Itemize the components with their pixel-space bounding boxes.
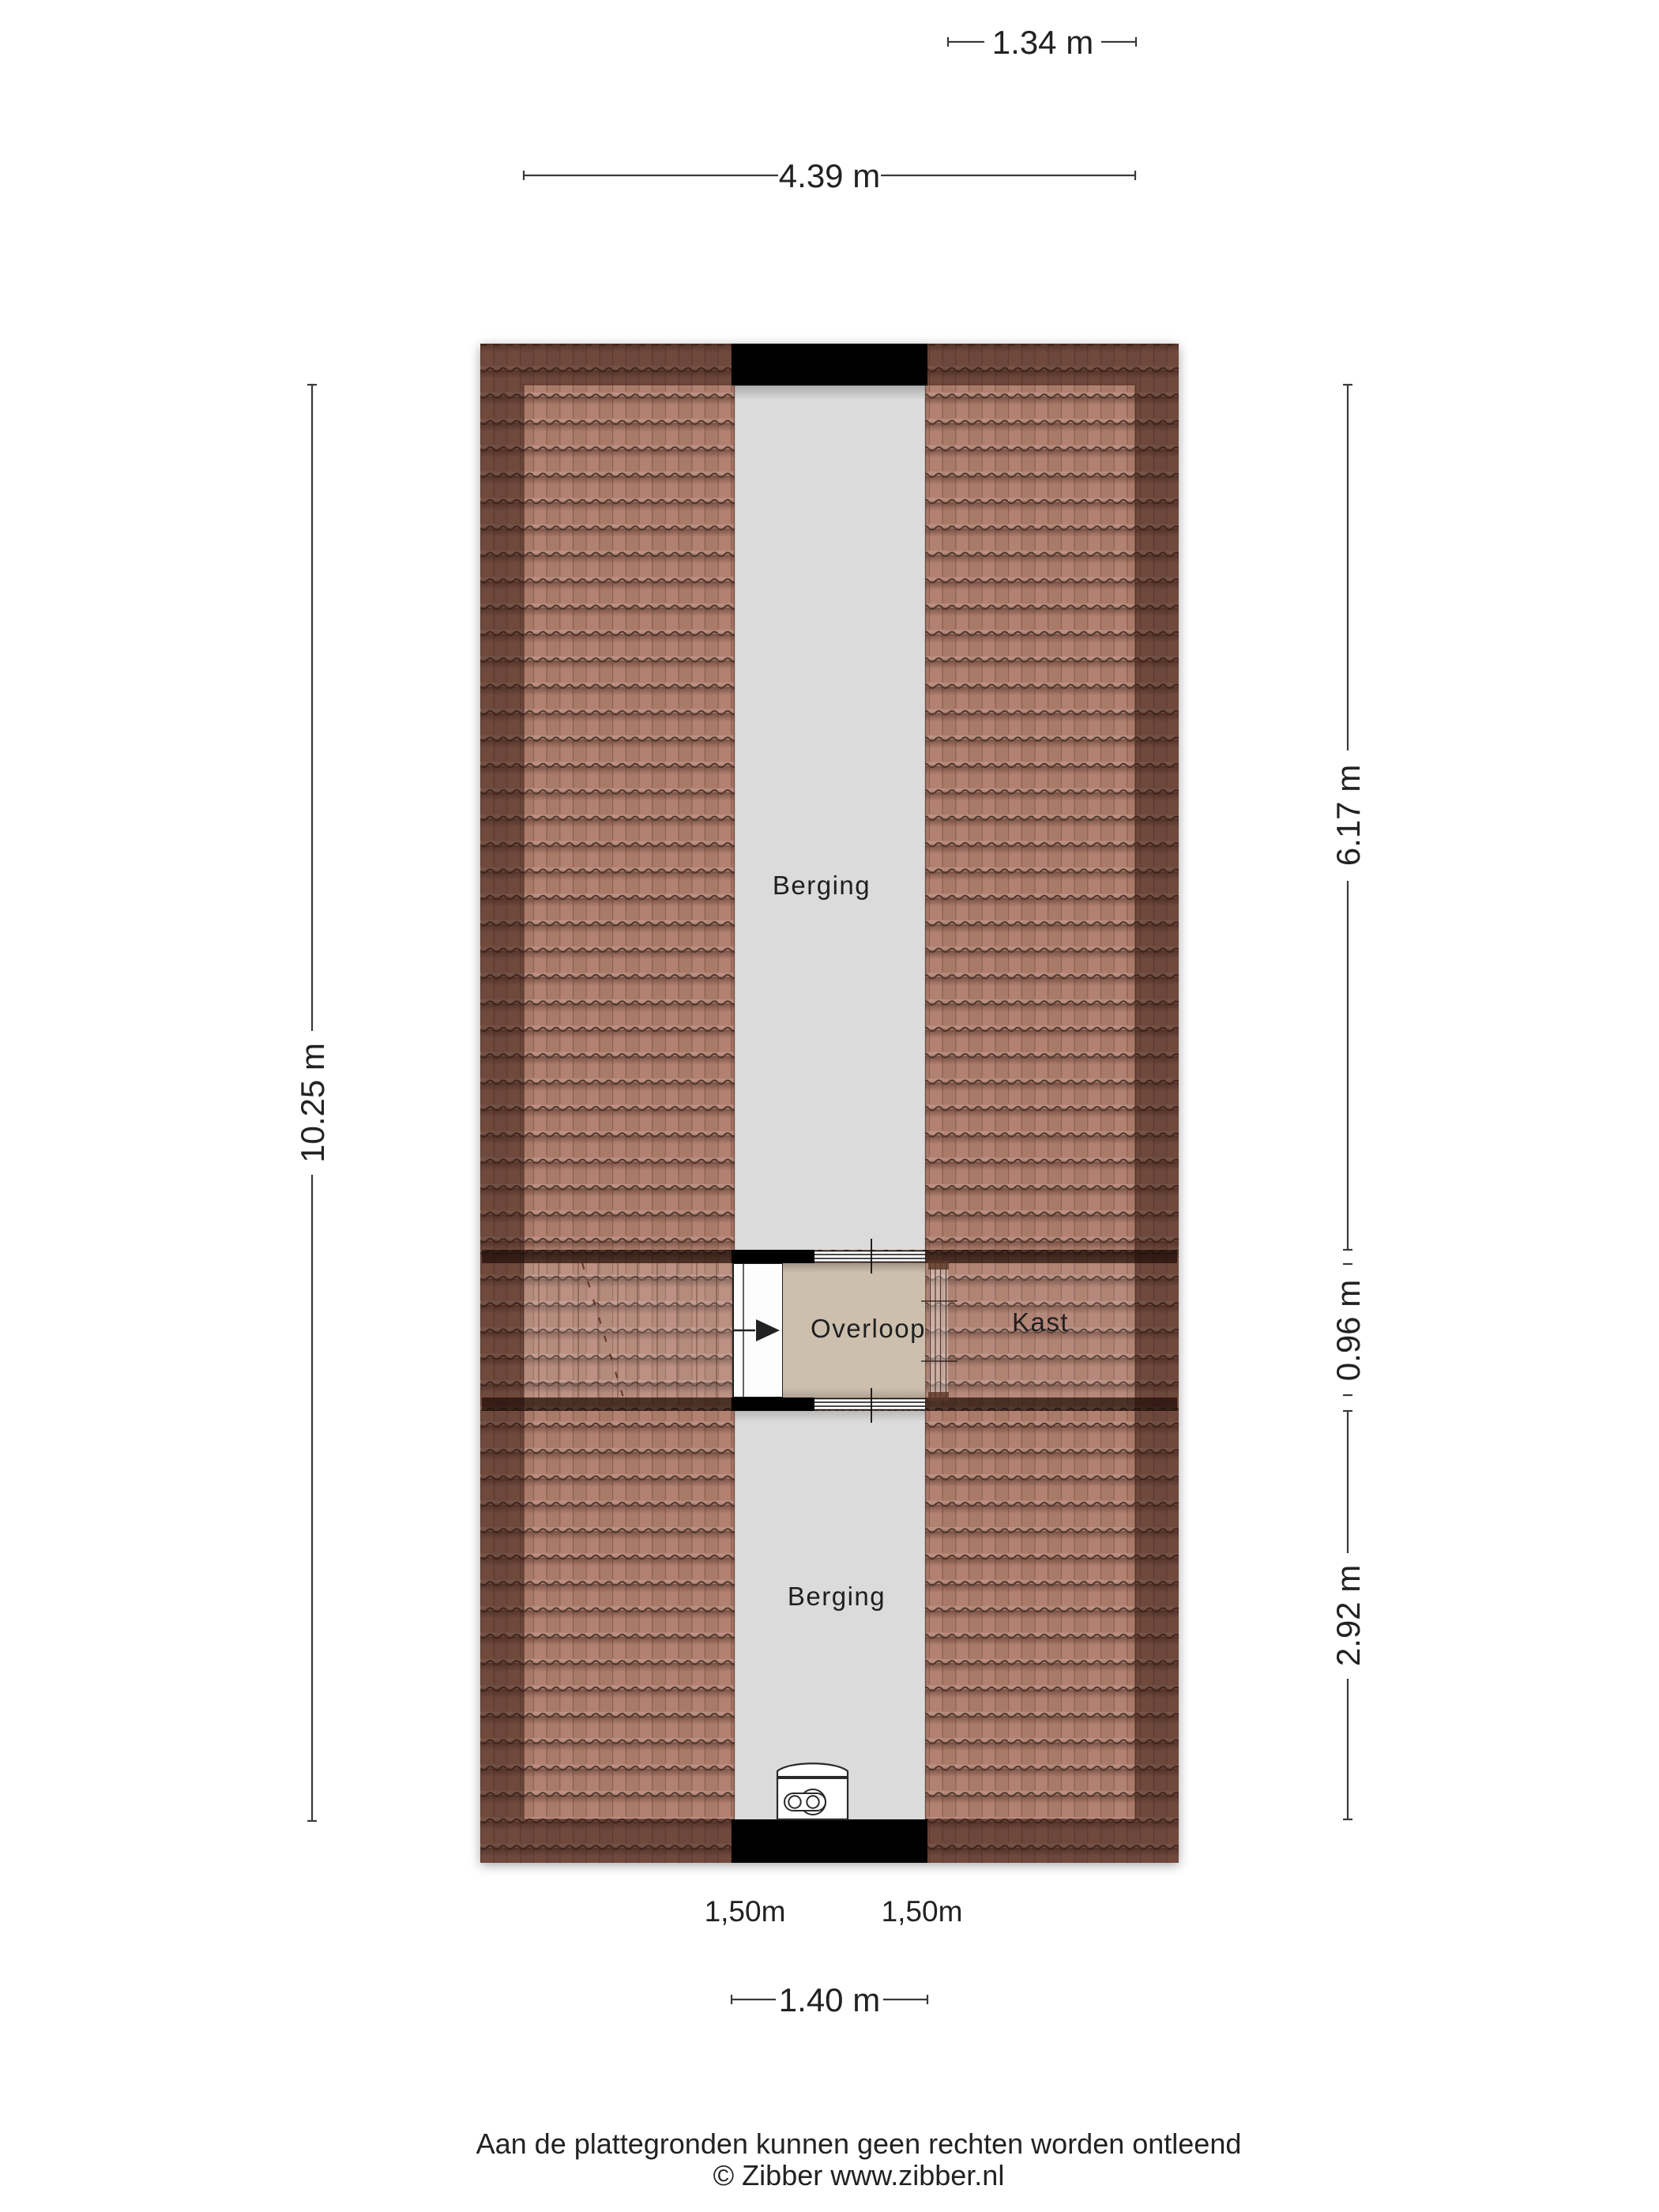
svg-text:0.96 m: 0.96 m xyxy=(1330,1280,1367,1381)
svg-text:2.92 m: 2.92 m xyxy=(1330,1565,1367,1666)
svg-text:1,50m: 1,50m xyxy=(882,1895,963,1928)
svg-text:Overloop: Overloop xyxy=(811,1314,926,1343)
svg-text:Berging: Berging xyxy=(773,871,871,900)
svg-text:Aan de plattegronden kunnen ge: Aan de plattegronden kunnen geen rechten… xyxy=(476,2127,1242,2160)
svg-text:Berging: Berging xyxy=(788,1582,886,1611)
svg-text:4.39 m: 4.39 m xyxy=(779,157,880,194)
svg-text:1.34 m: 1.34 m xyxy=(992,24,1093,61)
svg-text:Kast: Kast xyxy=(1012,1307,1069,1337)
svg-text:10.25 m: 10.25 m xyxy=(294,1043,331,1163)
svg-text:6.17 m: 6.17 m xyxy=(1330,765,1367,866)
svg-text:1.40 m: 1.40 m xyxy=(779,1981,880,2018)
svg-text:1,50m: 1,50m xyxy=(705,1895,786,1928)
svg-text:© Zibber www.zibber.nl: © Zibber www.zibber.nl xyxy=(713,2159,1005,2191)
